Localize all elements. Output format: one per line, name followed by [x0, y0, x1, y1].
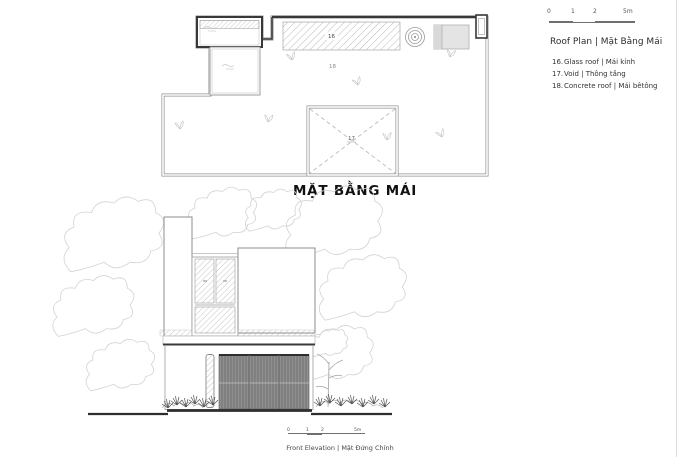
- roof-plan-title: MẶT BẰNG MÁI: [270, 183, 440, 199]
- plan-label-concrete: 18: [329, 64, 336, 70]
- scale-tick-1: 1: [571, 8, 575, 15]
- legend-item-number: 16.: [552, 58, 564, 66]
- scale-tick-5m: 5m: [623, 8, 633, 15]
- scale-tick-2: 2: [593, 8, 597, 15]
- front-elevation-drawing: [80, 204, 400, 434]
- scale-tick-2: 2: [321, 427, 324, 432]
- legend-item-concrete-roof: 18.Concrete roof | Mái bêtông: [552, 82, 657, 90]
- elevation-tower-wall: [164, 217, 192, 341]
- glass-roof-band: 16: [283, 22, 400, 50]
- page-edge-line: [676, 0, 677, 457]
- rooftop-equipment: [434, 25, 469, 49]
- elevation-caption: Front Elevation | Mặt Đứng Chính: [275, 444, 405, 452]
- glass-facade: [192, 257, 238, 336]
- legend-item-void: 17.Void | Thông tầng: [552, 70, 626, 78]
- legend-item-label: Glass roof | Mái kính: [564, 58, 635, 66]
- scalebar-bottom: 0 1 2 5m: [288, 427, 365, 439]
- glass-roof-hatch-strip: [200, 21, 259, 29]
- scale-tick-5m: 5m: [354, 427, 361, 432]
- legend-item-glass-roof: 16.Glass roof | Mái kính: [552, 58, 635, 66]
- plan-label-glass: 16: [328, 34, 335, 40]
- lower-roof-box: [210, 47, 260, 95]
- legend-item-label: Concrete roof | Mái bêtông: [564, 82, 657, 90]
- ground-line: [88, 411, 392, 415]
- plan-label-void: 17: [347, 136, 356, 142]
- skylight-circles: [406, 28, 425, 47]
- slatted-gate: [219, 355, 309, 409]
- chimney-box: [476, 15, 487, 38]
- legend-item-number: 18.: [552, 82, 564, 90]
- scale-tick-0: 0: [547, 8, 551, 15]
- legend-item-label: Void | Thông tầng: [564, 70, 626, 78]
- scale-bar-line: [549, 21, 635, 23]
- glass-roof-box: [197, 17, 262, 47]
- svg-text:17: 17: [348, 136, 355, 142]
- scalebar-top: 0 1 2 5m: [549, 8, 635, 26]
- roof-plan-drawing: 16 18 17: [140, 0, 520, 190]
- legend-item-number: 17.: [552, 70, 564, 78]
- scale-bar-line: [288, 433, 365, 435]
- elevation-upper-volume: [238, 248, 315, 333]
- drawing-sheet: 16 18 17: [0, 0, 680, 457]
- scale-tick-0: 0: [287, 427, 290, 432]
- legend-heading: Roof Plan | Mặt Bằng Mái: [550, 37, 662, 47]
- scale-tick-1: 1: [306, 427, 309, 432]
